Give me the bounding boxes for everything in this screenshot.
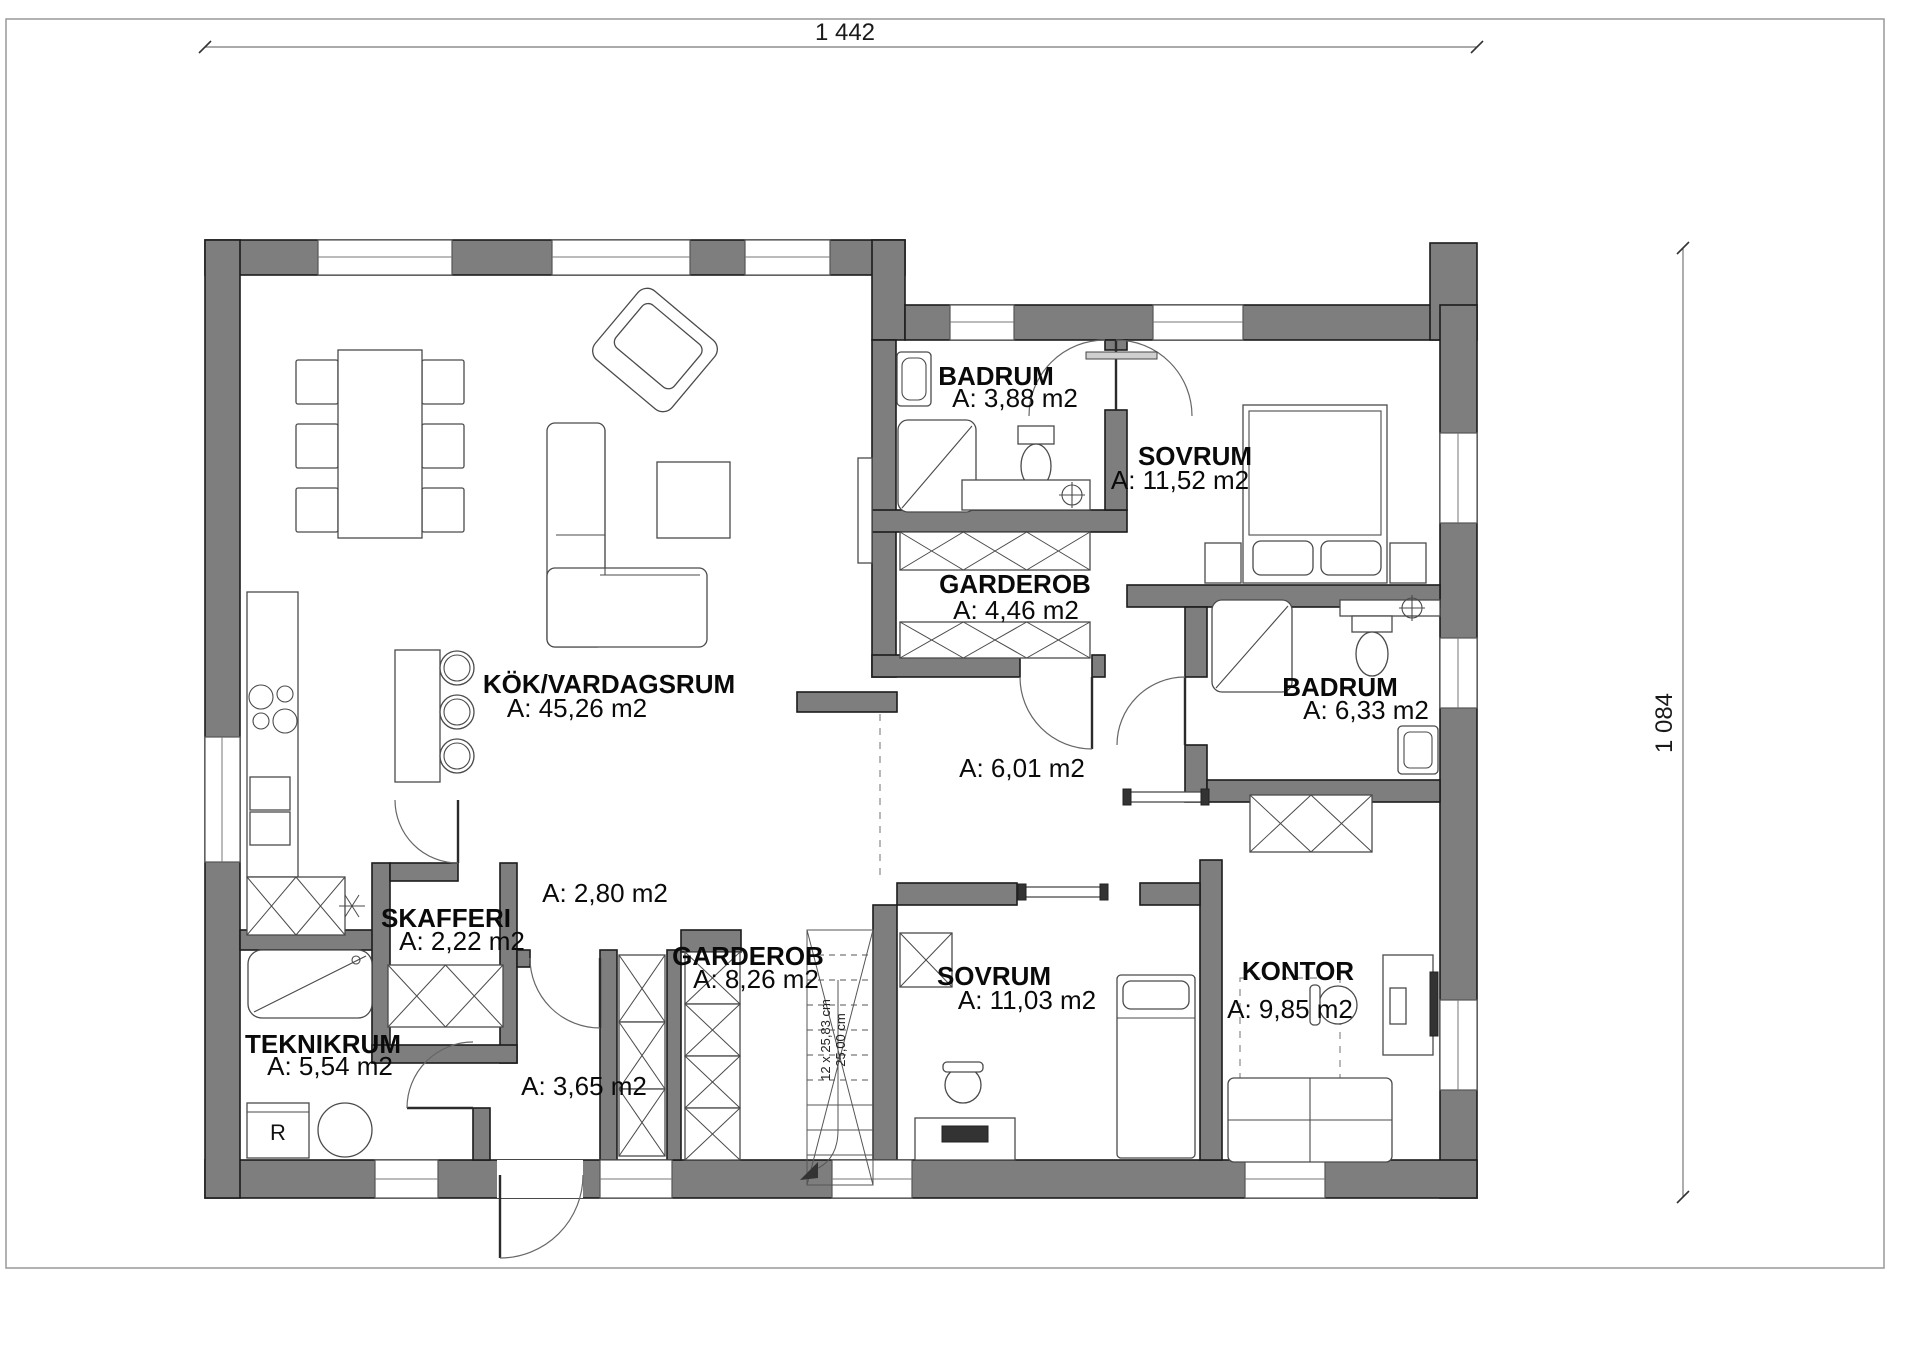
tv-bench xyxy=(858,458,872,563)
glass-partition xyxy=(1086,352,1157,359)
kitchen-island xyxy=(395,650,474,782)
room-area-tech-room: A: 5,54 m2 xyxy=(267,1053,393,1079)
room-area-kitchen-living: A: 45,26 m2 xyxy=(507,695,647,721)
room-area-bathroom-right: A: 6,33 m2 xyxy=(1303,697,1429,723)
hall-closet xyxy=(619,955,665,1156)
dimension-height-label: 1 084 xyxy=(1651,693,1679,753)
doors xyxy=(395,340,1209,1258)
floorplan-sheet: 1 442 1 084 KÖK/VARDAGSRUM A: 45,26 m2 B… xyxy=(0,0,1920,1357)
floorplan-drawing xyxy=(0,0,1920,1357)
stair-note: 12 x 25,83 cm 25,00 cm xyxy=(818,999,848,1081)
room-area-hall-center: A: 6,01 m2 xyxy=(959,755,1085,781)
sliding-door-office xyxy=(1123,789,1209,805)
dining-set xyxy=(296,350,464,538)
armchair xyxy=(588,283,722,416)
coffee-table xyxy=(657,462,730,538)
room-area-office: A: 9,85 m2 xyxy=(1227,996,1353,1022)
kitchen-counter xyxy=(247,592,298,877)
sliding-door-bedroom xyxy=(1018,884,1108,900)
room-label-office: KONTOR xyxy=(1242,958,1354,984)
room-area-hall-entry: A: 3,65 m2 xyxy=(521,1073,647,1099)
room-area-hall-small: A: 2,80 m2 xyxy=(542,880,668,906)
room-area-wardrobe-bottom: A: 8,26 m2 xyxy=(693,966,819,992)
room-area-wardrobe-top: A: 4,46 m2 xyxy=(953,597,1079,623)
dimension-width-label: 1 442 xyxy=(815,19,875,47)
room-area-bathroom-top: A: 3,88 m2 xyxy=(952,385,1078,411)
stair-note-line1: 12 x 25,83 cm xyxy=(818,999,833,1081)
room-area-bedroom-top: A: 11,52 m2 xyxy=(1111,467,1249,493)
room-area-pantry: A: 2,22 m2 xyxy=(399,928,525,954)
stair-note-line2: 25,00 cm xyxy=(833,1013,848,1066)
room-label-wardrobe-top: GARDEROB xyxy=(939,571,1091,597)
room-area-bedroom-bottom: A: 11,03 m2 xyxy=(958,987,1096,1013)
pantry-shelves xyxy=(388,965,503,1027)
entry-opening xyxy=(497,1160,583,1198)
appliance-label-r: R xyxy=(270,1120,286,1146)
kitchen-cabinets xyxy=(247,877,345,935)
